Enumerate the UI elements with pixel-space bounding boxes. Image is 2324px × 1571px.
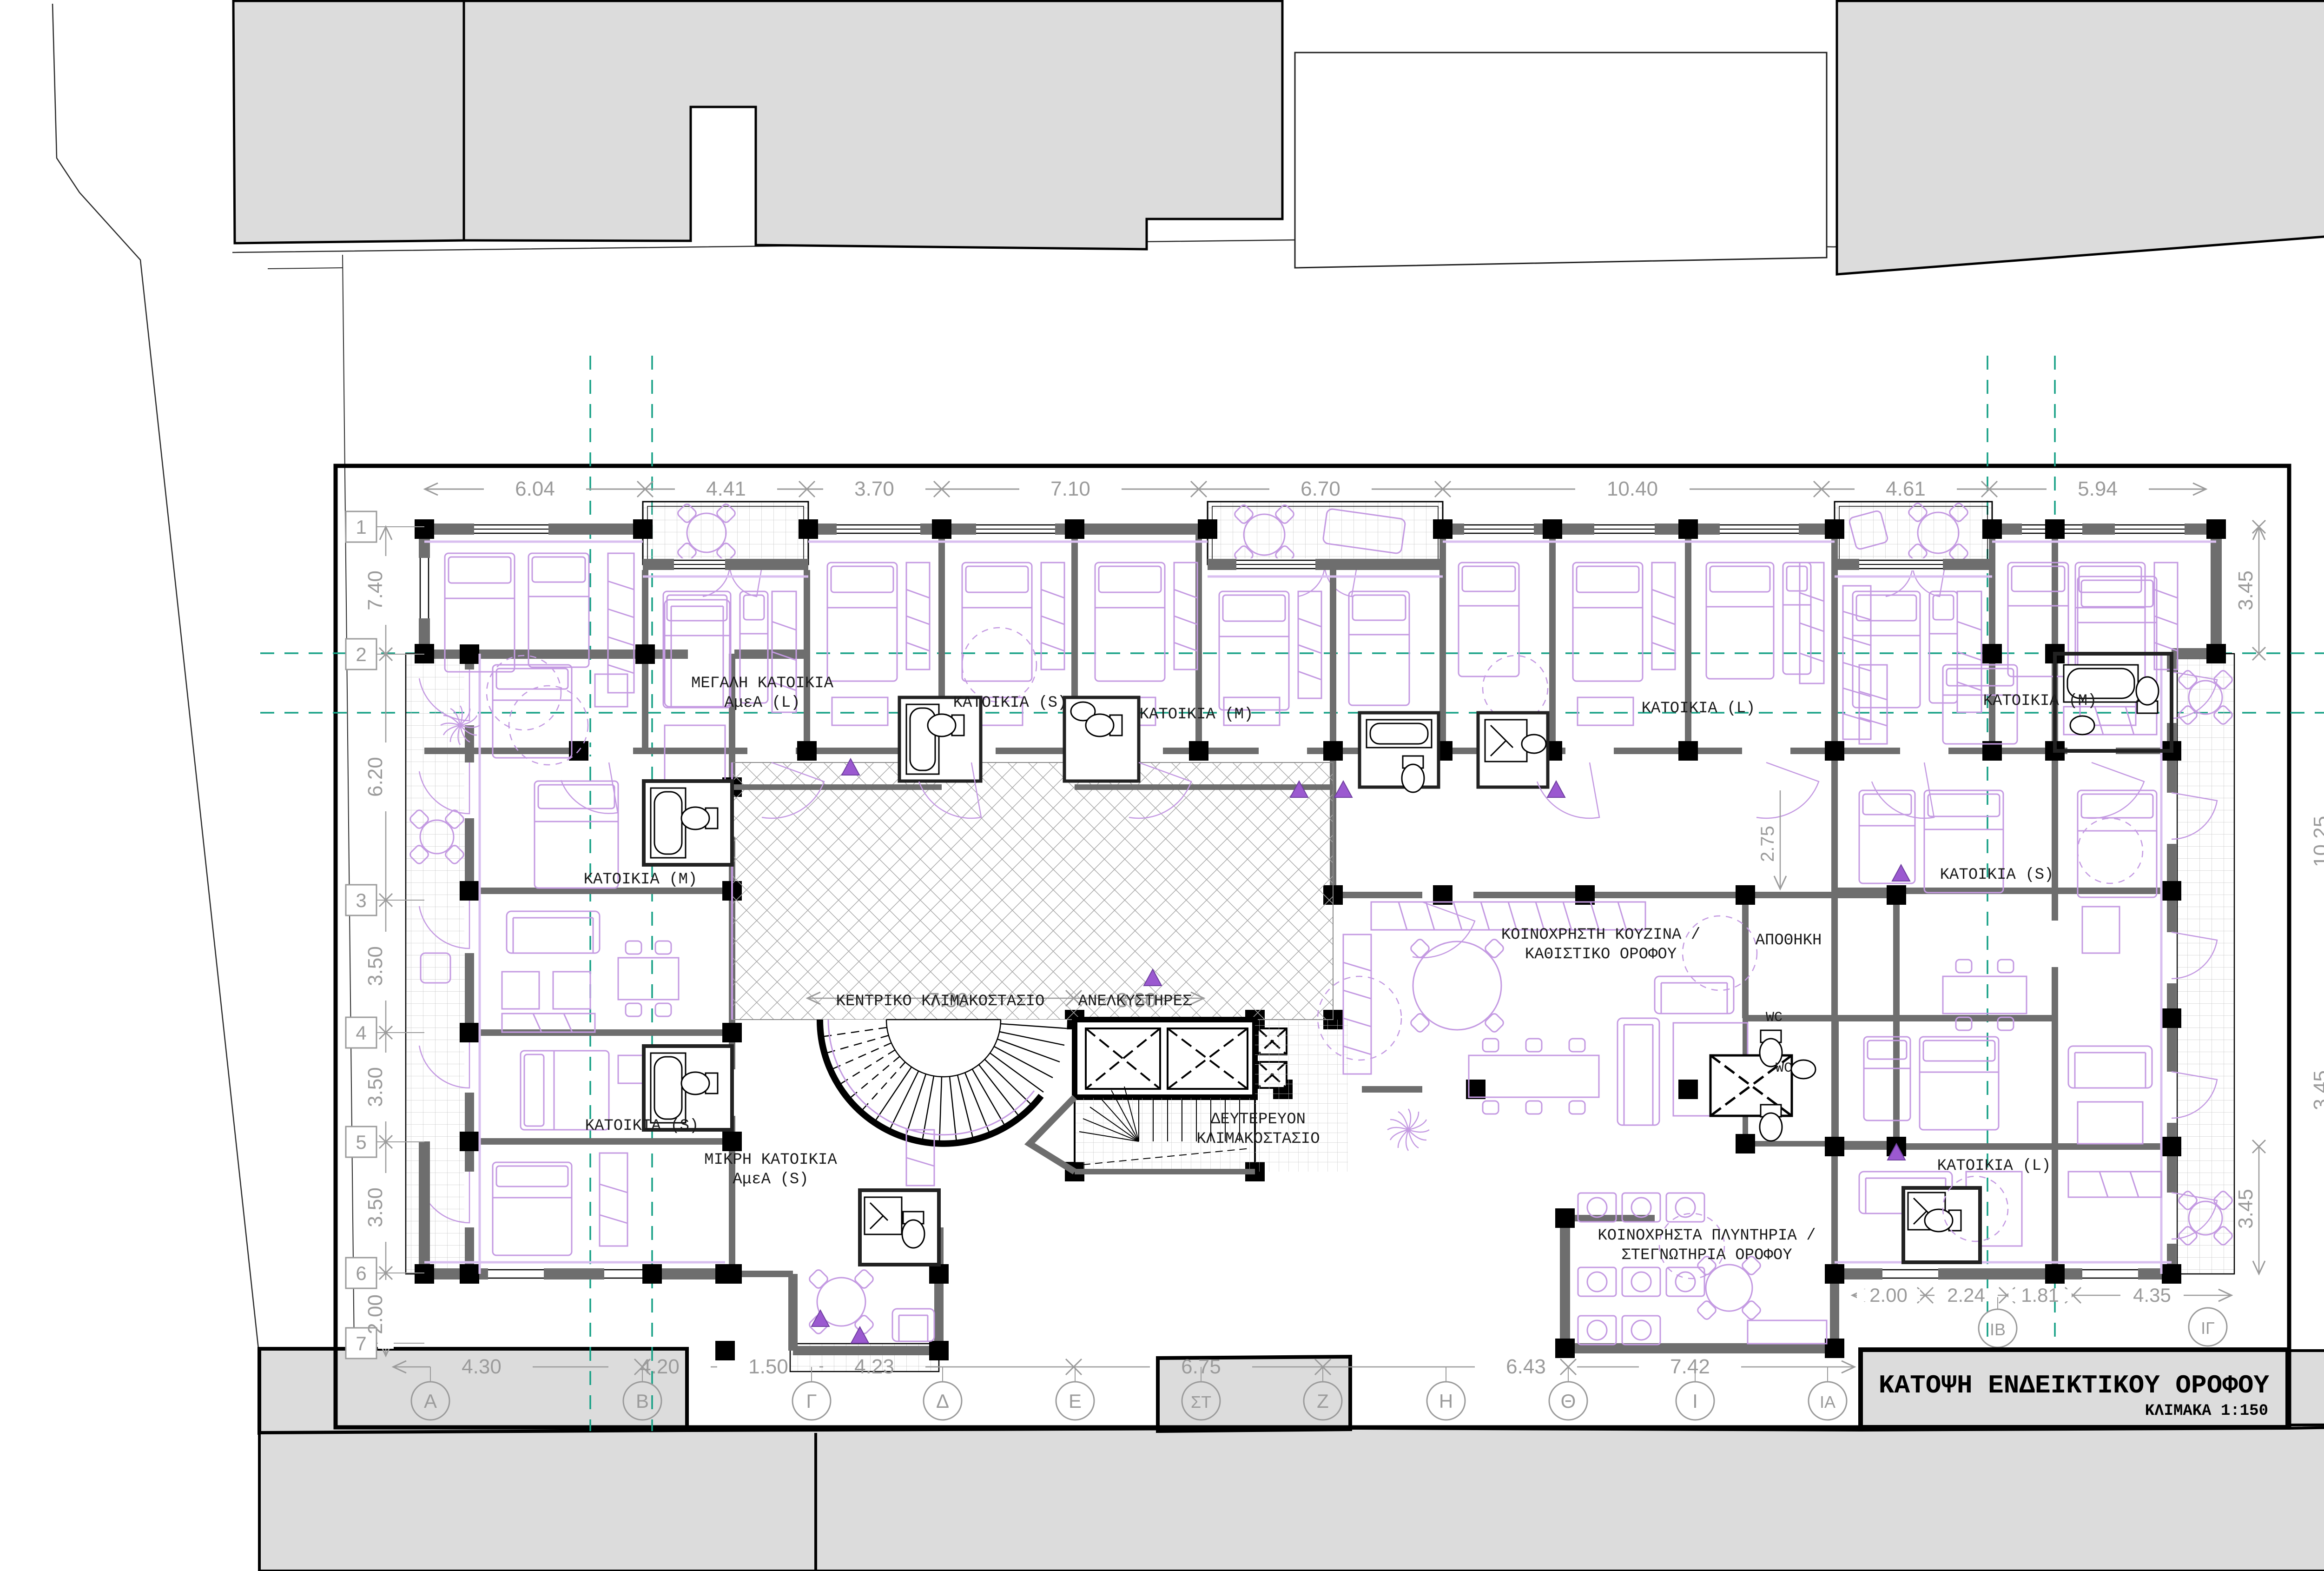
svg-text:ΚΕΝΤΡΙΚΟ ΚΛΙΜΑΚΟΣΤΑΣΙΟ: ΚΕΝΤΡΙΚΟ ΚΛΙΜΑΚΟΣΤΑΣΙΟ xyxy=(836,993,1045,1010)
svg-text:3.50: 3.50 xyxy=(364,946,387,986)
svg-text:ΚΑΘΙΣΤΙΚΟ ΟΡΟΦΟΥ: ΚΑΘΙΣΤΙΚΟ ΟΡΟΦΟΥ xyxy=(1525,946,1677,963)
svg-text:3.70: 3.70 xyxy=(854,477,894,500)
svg-text:ΚΑΤΟΙΚΙΑ (L): ΚΑΤΟΙΚΙΑ (L) xyxy=(1642,700,1756,717)
svg-text:ΣΤΕΓΝΩΤΗΡΙΑ ΟΡΟΦΟΥ: ΣΤΕΓΝΩΤΗΡΙΑ ΟΡΟΦΟΥ xyxy=(1621,1246,1792,1264)
svg-text:ΙΓ: ΙΓ xyxy=(2201,1319,2215,1338)
svg-text:ΑμεΑ (S): ΑμεΑ (S) xyxy=(733,1171,808,1188)
svg-text:WC: WC xyxy=(1766,1010,1783,1026)
svg-text:ΑμεΑ (L): ΑμεΑ (L) xyxy=(724,694,800,712)
svg-text:Θ: Θ xyxy=(1561,1390,1576,1412)
svg-text:ΚΑΤΟΙΚΙΑ (M): ΚΑΤΟΙΚΙΑ (M) xyxy=(584,871,698,888)
svg-text:ΚΛΙΜΑΚΑ 1:150: ΚΛΙΜΑΚΑ 1:150 xyxy=(2145,1402,2268,1420)
svg-text:ΜΙΚΡΗ ΚΑΤΟΙΚΙΑ: ΜΙΚΡΗ ΚΑΤΟΙΚΙΑ xyxy=(704,1151,837,1169)
svg-text:ΑΠΟΘΗΚΗ: ΑΠΟΘΗΚΗ xyxy=(1756,932,1822,949)
svg-text:3.50: 3.50 xyxy=(364,1067,387,1107)
svg-text:WC: WC xyxy=(1776,1061,1792,1076)
svg-text:6.70: 6.70 xyxy=(1301,477,1340,500)
svg-text:2: 2 xyxy=(356,643,366,665)
svg-text:Γ: Γ xyxy=(806,1390,817,1412)
svg-text:4.20: 4.20 xyxy=(640,1355,680,1378)
svg-text:ΚΑΤΟΙΚΙΑ (M): ΚΑΤΟΙΚΙΑ (M) xyxy=(1140,706,1254,723)
svg-text:3.45: 3.45 xyxy=(2310,1070,2324,1110)
svg-text:1.81: 1.81 xyxy=(2021,1284,2059,1306)
svg-text:ΜΕΓΑΛΗ ΚΑΤΟΙΚΙΑ: ΜΕΓΑΛΗ ΚΑΤΟΙΚΙΑ xyxy=(691,675,834,692)
svg-text:ΙΑ: ΙΑ xyxy=(1820,1392,1835,1412)
svg-text:6.04: 6.04 xyxy=(515,477,555,500)
svg-text:7: 7 xyxy=(356,1332,366,1354)
svg-text:Δ: Δ xyxy=(936,1390,949,1412)
svg-text:3: 3 xyxy=(356,889,366,911)
svg-text:4: 4 xyxy=(356,1022,366,1044)
svg-text:ΚΟΙΝΟΧΡΗΣΤΗ ΚΟΥΖΙΝΑ /: ΚΟΙΝΟΧΡΗΣΤΗ ΚΟΥΖΙΝΑ / xyxy=(1501,926,1700,944)
svg-text:2.00: 2.00 xyxy=(364,1294,387,1334)
svg-text:Η: Η xyxy=(1439,1390,1453,1412)
svg-text:ΚΑΤΟΙΚΙΑ (S): ΚΑΤΟΙΚΙΑ (S) xyxy=(1940,866,2054,884)
svg-text:Β: Β xyxy=(636,1390,649,1412)
svg-text:5.94: 5.94 xyxy=(2078,477,2118,500)
svg-text:Ι: Ι xyxy=(1692,1390,1698,1412)
svg-text:10.25: 10.25 xyxy=(2310,816,2324,867)
svg-text:4.41: 4.41 xyxy=(706,477,746,500)
svg-text:ΚΛΙΜΑΚΟΣΤΑΣΙΟ: ΚΛΙΜΑΚΟΣΤΑΣΙΟ xyxy=(1196,1130,1320,1148)
svg-text:6.43: 6.43 xyxy=(1506,1355,1546,1378)
svg-text:ΚΑΤΟΙΚΙΑ (L): ΚΑΤΟΙΚΙΑ (L) xyxy=(1937,1157,2051,1175)
svg-text:ΙΒ: ΙΒ xyxy=(1990,1320,2006,1339)
svg-text:7.42: 7.42 xyxy=(1670,1355,1710,1378)
svg-text:2.00: 2.00 xyxy=(1869,1284,1908,1306)
svg-text:Ε: Ε xyxy=(1069,1390,1082,1412)
svg-text:3.45: 3.45 xyxy=(2234,1189,2257,1229)
svg-text:3.50: 3.50 xyxy=(364,1187,387,1227)
svg-text:ΚΟΙΝΟΧΡΗΣΤΑ ΠΛΥΝΤΗΡΙΑ /: ΚΟΙΝΟΧΡΗΣΤΑ ΠΛΥΝΤΗΡΙΑ / xyxy=(1598,1227,1816,1245)
svg-text:ΣΤ: ΣΤ xyxy=(1191,1392,1211,1412)
svg-text:5: 5 xyxy=(356,1131,366,1153)
svg-text:4.35: 4.35 xyxy=(2133,1284,2171,1306)
svg-text:1: 1 xyxy=(356,516,366,538)
svg-text:1.50: 1.50 xyxy=(748,1355,788,1378)
svg-text:ΔΕΥΤΕΡΕΥΟΝ: ΔΕΥΤΕΡΕΥΟΝ xyxy=(1211,1111,1306,1128)
svg-text:3.45: 3.45 xyxy=(2234,570,2257,610)
svg-text:7.40: 7.40 xyxy=(364,570,387,610)
svg-text:4.61: 4.61 xyxy=(1886,477,1926,500)
svg-text:7.10: 7.10 xyxy=(1050,477,1090,500)
svg-text:Ζ: Ζ xyxy=(1317,1390,1329,1412)
svg-text:ΚΑΤΟΙΚΙΑ (S): ΚΑΤΟΙΚΙΑ (S) xyxy=(585,1117,699,1135)
svg-text:4.30: 4.30 xyxy=(462,1355,502,1378)
svg-text:ΚΑΤΟΙΚΙΑ (S): ΚΑΤΟΙΚΙΑ (S) xyxy=(953,694,1067,712)
svg-text:6: 6 xyxy=(356,1262,366,1284)
svg-text:ΚΑΤΟΙΚΙΑ (M): ΚΑΤΟΙΚΙΑ (M) xyxy=(1983,692,2097,710)
svg-text:2.24: 2.24 xyxy=(1947,1284,1985,1306)
svg-text:2.75: 2.75 xyxy=(1757,826,1778,862)
svg-text:ΚΑΤΟΨΗ ΕΝΔΕΙΚΤΙΚΟΥ ΟΡΟΦΟΥ: ΚΑΤΟΨΗ ΕΝΔΕΙΚΤΙΚΟΥ ΟΡΟΦΟΥ xyxy=(1879,1371,2270,1400)
svg-text:4.23: 4.23 xyxy=(854,1355,894,1378)
svg-text:6.20: 6.20 xyxy=(364,757,387,797)
svg-text:10.40: 10.40 xyxy=(1607,477,1658,500)
svg-text:Α: Α xyxy=(424,1390,437,1412)
svg-text:ΑΝΕΛΚΥΣΤΗΡΕΣ: ΑΝΕΛΚΥΣΤΗΡΕΣ xyxy=(1078,993,1192,1010)
